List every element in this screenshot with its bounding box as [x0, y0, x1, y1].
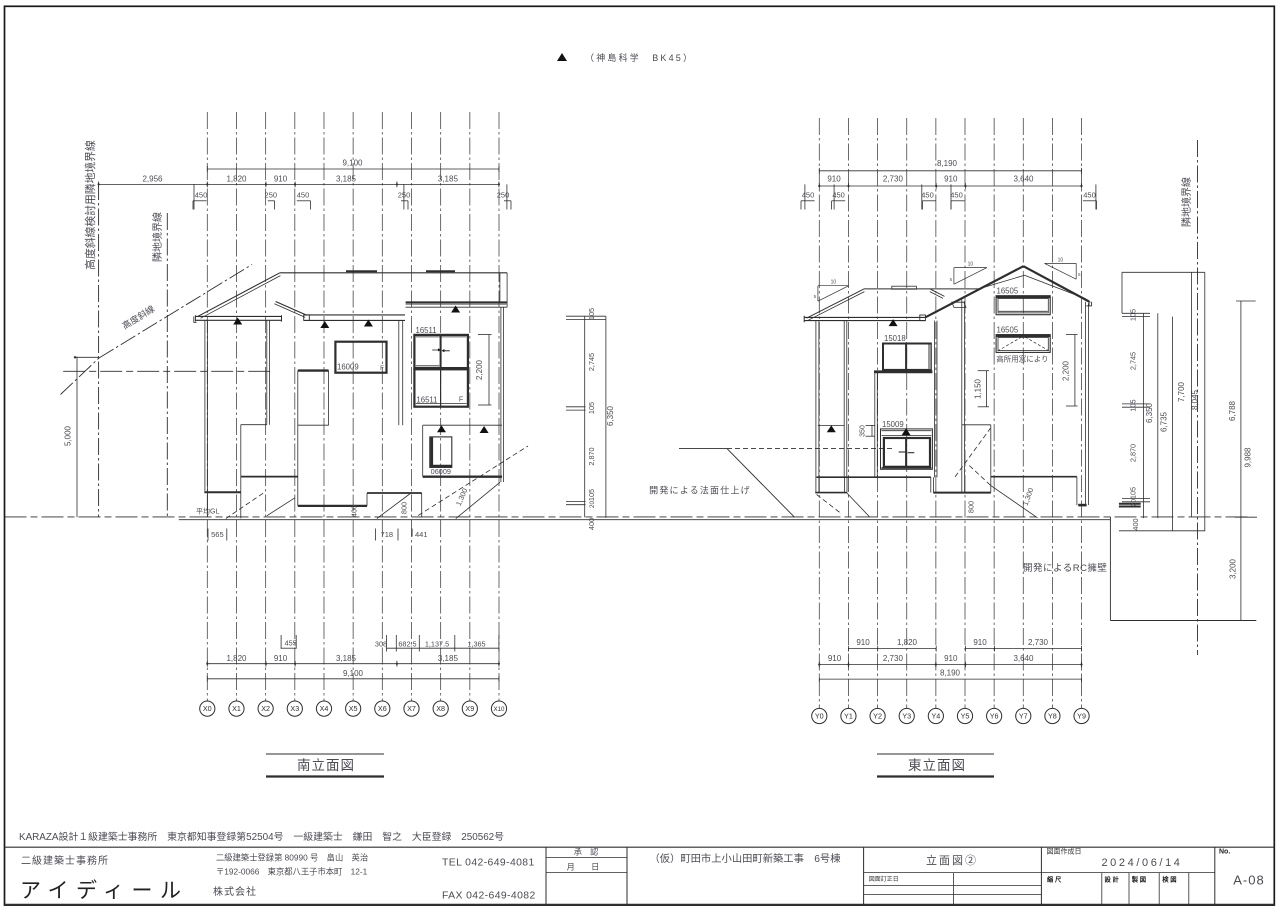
- svg-text:2024/06/14: 2024/06/14: [1101, 857, 1182, 869]
- svg-text:9,988: 9,988: [1244, 447, 1253, 468]
- svg-text:910: 910: [274, 654, 288, 663]
- svg-text:105: 105: [587, 489, 596, 501]
- svg-text:Y6: Y6: [990, 712, 999, 721]
- svg-text:455: 455: [285, 639, 297, 648]
- svg-text:450: 450: [1083, 191, 1096, 200]
- svg-text:1,365: 1,365: [467, 639, 485, 648]
- svg-text:1,137.5: 1,137.5: [425, 639, 449, 648]
- svg-text:105: 105: [1129, 399, 1138, 411]
- svg-text:KARAZA設計１級建築士事務所 東京都知事登録第52504: KARAZA設計１級建築士事務所 東京都知事登録第52504号 一級建築士 鎌田…: [19, 830, 504, 843]
- svg-text:Y9: Y9: [1077, 712, 1086, 721]
- svg-text:（仮）町田市上小山田町新築工事 6号棟: （仮）町田市上小山田町新築工事 6号棟: [649, 852, 841, 865]
- svg-text:910: 910: [973, 638, 987, 647]
- svg-text:2,745: 2,745: [1129, 352, 1138, 370]
- svg-text:図面訂正日: 図面訂正日: [869, 875, 899, 883]
- svg-text:10: 10: [831, 280, 837, 286]
- svg-text:2,956: 2,956: [142, 174, 163, 183]
- svg-text:450: 450: [802, 191, 815, 200]
- svg-text:105: 105: [1129, 309, 1138, 321]
- svg-text:南立面図: 南立面図: [297, 758, 355, 773]
- svg-text:441: 441: [415, 530, 428, 539]
- svg-text:X6: X6: [378, 704, 387, 713]
- svg-text:設 計: 設 計: [1105, 874, 1120, 883]
- svg-text:8,045: 8,045: [1191, 389, 1200, 410]
- svg-text:350: 350: [860, 425, 867, 437]
- svg-text:（神島科学 BK45）: （神島科学 BK45）: [585, 52, 694, 63]
- svg-text:16511: 16511: [416, 396, 437, 405]
- svg-text:立面図②: 立面図②: [926, 853, 978, 867]
- svg-text:X10: X10: [493, 706, 505, 713]
- svg-text:10: 10: [968, 262, 974, 268]
- svg-text:3,185: 3,185: [438, 654, 459, 663]
- svg-text:910: 910: [944, 175, 958, 184]
- svg-text:1,820: 1,820: [226, 174, 247, 183]
- svg-text:10: 10: [1058, 257, 1064, 263]
- svg-text:1,150: 1,150: [974, 378, 983, 399]
- svg-text:Y4: Y4: [931, 712, 940, 721]
- svg-text:TEL 042-649-4081: TEL 042-649-4081: [442, 858, 535, 869]
- svg-text:Y3: Y3: [902, 712, 911, 721]
- svg-text:250: 250: [265, 191, 278, 200]
- svg-text:565: 565: [211, 530, 224, 539]
- svg-text:2,730: 2,730: [1028, 638, 1049, 647]
- svg-text:450: 450: [195, 191, 208, 200]
- svg-text:308: 308: [375, 639, 387, 648]
- svg-text:月 日: 月 日: [567, 863, 600, 872]
- svg-text:X0: X0: [203, 704, 212, 713]
- svg-text:図面作成日: 図面作成日: [1047, 847, 1082, 856]
- svg-text:X9: X9: [465, 704, 474, 713]
- svg-text:Y8: Y8: [1048, 712, 1057, 721]
- svg-text:2,730: 2,730: [883, 654, 904, 663]
- svg-text:Y7: Y7: [1019, 712, 1028, 721]
- svg-text:1,820: 1,820: [897, 638, 918, 647]
- svg-text:9,100: 9,100: [343, 669, 364, 678]
- svg-text:東立面図: 東立面図: [908, 758, 966, 773]
- svg-text:105: 105: [587, 308, 596, 320]
- svg-text:X5: X5: [349, 704, 358, 713]
- svg-text:A-08: A-08: [1233, 873, 1264, 888]
- svg-text:F: F: [459, 397, 463, 404]
- svg-text:株式会社: 株式会社: [213, 885, 257, 898]
- svg-text:5,000: 5,000: [64, 425, 73, 446]
- svg-text:20: 20: [1131, 499, 1138, 506]
- svg-text:〒192-0066 東京都八王子市本町 12-1: 〒192-0066 東京都八王子市本町 12-1: [216, 867, 368, 877]
- svg-text:2,745: 2,745: [587, 353, 596, 371]
- svg-text:16505: 16505: [997, 286, 1019, 295]
- svg-text:開発による法面仕上げ: 開発による法面仕上げ: [649, 485, 751, 496]
- svg-text:検 図: 検 図: [1162, 874, 1176, 883]
- svg-text:2,730: 2,730: [883, 175, 904, 184]
- svg-text:910: 910: [274, 174, 288, 183]
- svg-text:3,640: 3,640: [1013, 175, 1034, 184]
- svg-text:高度斜線: 高度斜線: [120, 303, 156, 331]
- svg-text:9,100: 9,100: [342, 159, 363, 168]
- svg-text:800: 800: [400, 502, 409, 514]
- svg-text:6,350: 6,350: [606, 405, 615, 426]
- svg-text:3,185: 3,185: [336, 654, 357, 663]
- svg-text:アイディール: アイディール: [20, 880, 188, 903]
- svg-text:Y2: Y2: [873, 712, 882, 721]
- svg-text:450: 450: [950, 191, 963, 200]
- svg-text:Y5: Y5: [961, 712, 970, 721]
- svg-text:縮 尺: 縮 尺: [1047, 874, 1062, 883]
- svg-text:F: F: [380, 366, 384, 372]
- svg-text:6,788: 6,788: [1228, 400, 1237, 421]
- svg-text:3,200: 3,200: [1229, 558, 1238, 579]
- svg-text:X2: X2: [261, 704, 270, 713]
- svg-text:16511: 16511: [416, 326, 437, 335]
- svg-text:3,640: 3,640: [1013, 654, 1034, 663]
- svg-text:Y1: Y1: [844, 712, 853, 721]
- svg-text:X4: X4: [320, 704, 329, 713]
- svg-text:450: 450: [921, 191, 934, 200]
- svg-text:8,190: 8,190: [940, 669, 961, 678]
- svg-text:2,200: 2,200: [475, 359, 484, 380]
- svg-text:承 認: 承 認: [574, 847, 599, 857]
- svg-text:400: 400: [350, 505, 359, 517]
- svg-text:910: 910: [944, 654, 958, 663]
- svg-text:2,870: 2,870: [1129, 444, 1138, 462]
- svg-text:800: 800: [966, 501, 975, 513]
- svg-text:06009: 06009: [431, 467, 451, 476]
- svg-text:1,820: 1,820: [226, 654, 247, 663]
- svg-text:FAX 042-649-4082: FAX 042-649-4082: [442, 891, 536, 902]
- svg-text:6,350: 6,350: [1145, 402, 1154, 423]
- svg-text:7,700: 7,700: [1177, 381, 1186, 402]
- svg-text:3,185: 3,185: [438, 174, 459, 183]
- svg-text:6,735: 6,735: [1160, 411, 1169, 432]
- svg-text:X8: X8: [436, 704, 445, 713]
- svg-text:450: 450: [297, 191, 310, 200]
- svg-text:910: 910: [856, 638, 870, 647]
- svg-text:15009: 15009: [882, 420, 904, 429]
- svg-text:16009: 16009: [337, 362, 359, 371]
- svg-text:高所用窓により: 高所用窓により: [996, 353, 1048, 363]
- svg-text:高度斜線検討用隣地境界線: 高度斜線検討用隣地境界線: [83, 140, 97, 270]
- svg-text:105: 105: [587, 402, 596, 414]
- svg-text:16505: 16505: [997, 325, 1019, 334]
- svg-text:5: 5: [814, 294, 817, 299]
- svg-text:X3: X3: [290, 704, 299, 713]
- svg-text:5: 5: [1078, 272, 1081, 277]
- svg-text:250: 250: [497, 191, 510, 200]
- svg-text:開発によるRC擁壁: 開発によるRC擁壁: [1023, 562, 1107, 574]
- svg-text:隣地境界線: 隣地境界線: [1180, 177, 1193, 227]
- svg-text:8,190: 8,190: [937, 159, 958, 168]
- svg-text:2,870: 2,870: [587, 447, 596, 465]
- svg-text:910: 910: [827, 175, 841, 184]
- svg-text:400: 400: [587, 518, 596, 530]
- svg-text:X1: X1: [232, 704, 241, 713]
- svg-text:20: 20: [589, 501, 596, 508]
- svg-text:X7: X7: [407, 704, 416, 713]
- svg-text:5: 5: [950, 277, 953, 282]
- svg-text:Y0: Y0: [815, 712, 824, 721]
- svg-text:二級建築士登録第 80990 号 畠山 英治: 二級建築士登録第 80990 号 畠山 英治: [216, 853, 368, 863]
- svg-text:3,185: 3,185: [336, 174, 357, 183]
- svg-text:910: 910: [828, 654, 842, 663]
- svg-text:二級建築士事務所: 二級建築士事務所: [21, 854, 109, 867]
- svg-text:隣地境界線: 隣地境界線: [151, 212, 164, 262]
- svg-text:製 図: 製 図: [1131, 874, 1146, 883]
- svg-text:718: 718: [381, 530, 394, 539]
- svg-text:15018: 15018: [884, 334, 906, 343]
- svg-text:2,200: 2,200: [1062, 360, 1071, 381]
- svg-text:682.5: 682.5: [398, 639, 416, 648]
- svg-text:400: 400: [1131, 518, 1140, 530]
- svg-text:No.: No.: [1219, 849, 1230, 856]
- svg-text:105: 105: [1129, 487, 1138, 499]
- svg-text:1,300: 1,300: [454, 487, 470, 507]
